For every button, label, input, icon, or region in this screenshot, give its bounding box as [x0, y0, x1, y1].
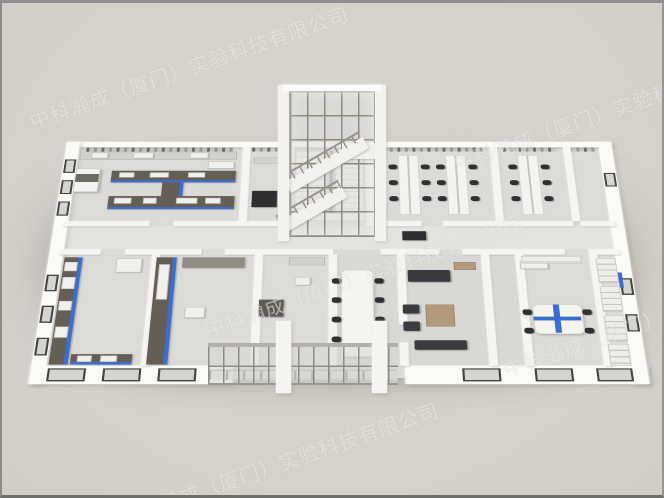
back-window-office-c [382, 148, 482, 152]
storage-shelf [599, 287, 623, 312]
front-window [46, 368, 86, 381]
corridor-north-wall [62, 221, 149, 226]
office-chair [540, 165, 549, 170]
office-chair [508, 165, 517, 170]
office-chair [421, 180, 430, 185]
office-c-desk-row [398, 155, 422, 214]
lab-instrument [58, 301, 73, 311]
left-window [60, 180, 74, 194]
lab-instrument [189, 153, 208, 159]
storage-shelf [595, 258, 619, 283]
lab-instrument [54, 327, 69, 338]
storage-shelf [521, 256, 582, 263]
office-chair [421, 165, 430, 170]
office-chair [468, 165, 477, 170]
lab-h-bench [289, 257, 325, 265]
lab-instrument [188, 172, 206, 177]
office-c-desk-row [445, 155, 470, 214]
conference-chair [375, 297, 384, 302]
lounge-cabinet [453, 262, 476, 270]
lab-instrument [133, 153, 154, 159]
office-chair [522, 309, 532, 314]
office-chair [582, 309, 592, 314]
lab-instrument [61, 277, 76, 289]
entrance-pillar [372, 321, 387, 393]
wall-conference-lounge [400, 343, 409, 366]
lab-instrument [149, 172, 169, 177]
office-chair [524, 328, 534, 334]
lab-instrument [176, 198, 198, 204]
lab-fridge [115, 258, 143, 272]
stairwell-left-column [278, 85, 289, 241]
left-window [63, 159, 77, 172]
office-chair [388, 165, 397, 170]
office-chair [542, 180, 551, 185]
front-window [534, 368, 574, 381]
conference-chair [332, 297, 341, 302]
front-window [462, 368, 501, 381]
left-window [34, 338, 49, 356]
room-b-equipment [251, 191, 277, 207]
corridor-north-wall [580, 221, 615, 226]
office-chair [510, 180, 519, 185]
lab-instrument [100, 355, 118, 361]
conference-chair [332, 336, 341, 342]
corridor-copier [402, 231, 426, 240]
office-chair [422, 196, 431, 201]
left-window [44, 275, 59, 292]
lab-a-cabinet [208, 161, 235, 168]
lounge-armchair [403, 304, 420, 313]
corridor-south-wall [58, 249, 101, 254]
office-chair [469, 180, 478, 185]
lab-instrument [119, 172, 135, 177]
corridor-north-wall [443, 221, 573, 226]
corridor-south-wall [225, 249, 333, 254]
lab-instrument [294, 277, 310, 285]
lab-g-cabinets [182, 257, 245, 267]
lab-h-washer [258, 300, 283, 317]
lounge-sofa [414, 340, 467, 349]
lab-instrument [76, 355, 92, 361]
fume-hood [73, 169, 101, 192]
lab-instrument [114, 198, 132, 204]
back-window-office-d [503, 148, 556, 152]
office-chair [584, 328, 594, 334]
room-b-bench [254, 157, 281, 163]
corridor-south-wall [463, 249, 565, 254]
corridor-north-wall [174, 221, 284, 226]
office-chair [471, 196, 480, 201]
storage-shelf [603, 315, 628, 341]
stairwell-right-column [375, 85, 386, 241]
lab-instrument [184, 307, 205, 318]
front-window [596, 368, 634, 381]
rendered-floorplan-image: 中科瀚成（厦门）实验科技有限公司中科瀚成（厦门）实验科技有限公司中科瀚成（厦门）… [0, 0, 664, 498]
stairwell-roof-beam [283, 85, 381, 91]
left-window [56, 202, 70, 216]
storage-shelf [608, 344, 632, 366]
lab-a-connector-bench [161, 182, 184, 196]
office-chair [389, 196, 398, 201]
back-window-corner-room [569, 148, 596, 152]
entrance-glass-facade [208, 343, 398, 385]
front-window [157, 368, 196, 381]
lab-instrument [64, 262, 78, 271]
office-chair [389, 180, 398, 185]
corridor-south-wall [381, 249, 439, 254]
stairwell-glass-tower [278, 85, 386, 237]
lab-instrument [143, 198, 157, 204]
conference-chair [332, 278, 341, 283]
office-chair [436, 165, 445, 170]
lab-instrument [205, 198, 221, 204]
conference-chair [332, 317, 341, 323]
office-chair [544, 196, 553, 201]
corridor-south-wall [125, 249, 201, 254]
entrance-curtain-wall [208, 343, 398, 385]
coffee-table [425, 304, 455, 326]
office-chair [437, 180, 446, 185]
back-window-room-b [252, 148, 280, 152]
right-window [625, 314, 640, 331]
lab-instrument [91, 153, 109, 159]
entrance-pillar [276, 321, 291, 393]
front-window [102, 368, 142, 381]
lounge-armchair [403, 322, 420, 331]
lounge-sofa [408, 270, 451, 282]
conference-chair [374, 278, 383, 283]
right-window [604, 173, 618, 187]
office-chair [511, 196, 520, 201]
left-window [39, 306, 54, 323]
office-chair [438, 196, 447, 201]
